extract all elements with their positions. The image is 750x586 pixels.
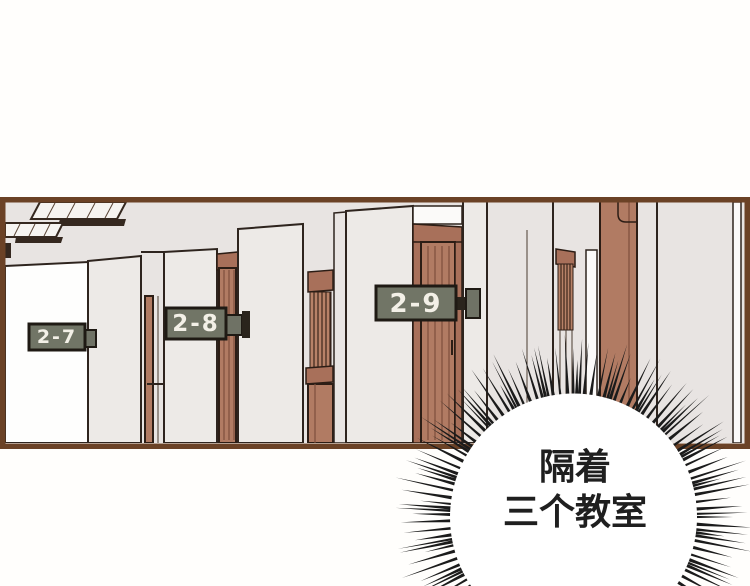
far-white-wall <box>5 262 88 443</box>
sign-label-2-7: 2-7 <box>37 326 77 348</box>
wall-2-8 <box>164 249 217 443</box>
speech-bubble-line2: 三个教室 <box>503 491 647 532</box>
door-2-8 <box>217 252 238 443</box>
sign-label-2-9: 2-9 <box>390 289 443 319</box>
classroom-sign-2-7: 2-7 <box>29 324 96 350</box>
pillar-2-7 <box>88 256 141 443</box>
wall-2-9 <box>346 206 413 443</box>
sign-label-2-8: 2-8 <box>172 311 220 337</box>
door-2-9 <box>413 206 462 443</box>
pillar-2-9 <box>463 200 487 443</box>
hallway-panel-art: 2-7 2-8 2-9 隔着 三个教室 <box>0 0 750 586</box>
speech-bubble-line1: 隔着 <box>539 446 611 487</box>
comic-page: 2-7 2-8 2-9 隔着 三个教室 <box>0 0 750 586</box>
